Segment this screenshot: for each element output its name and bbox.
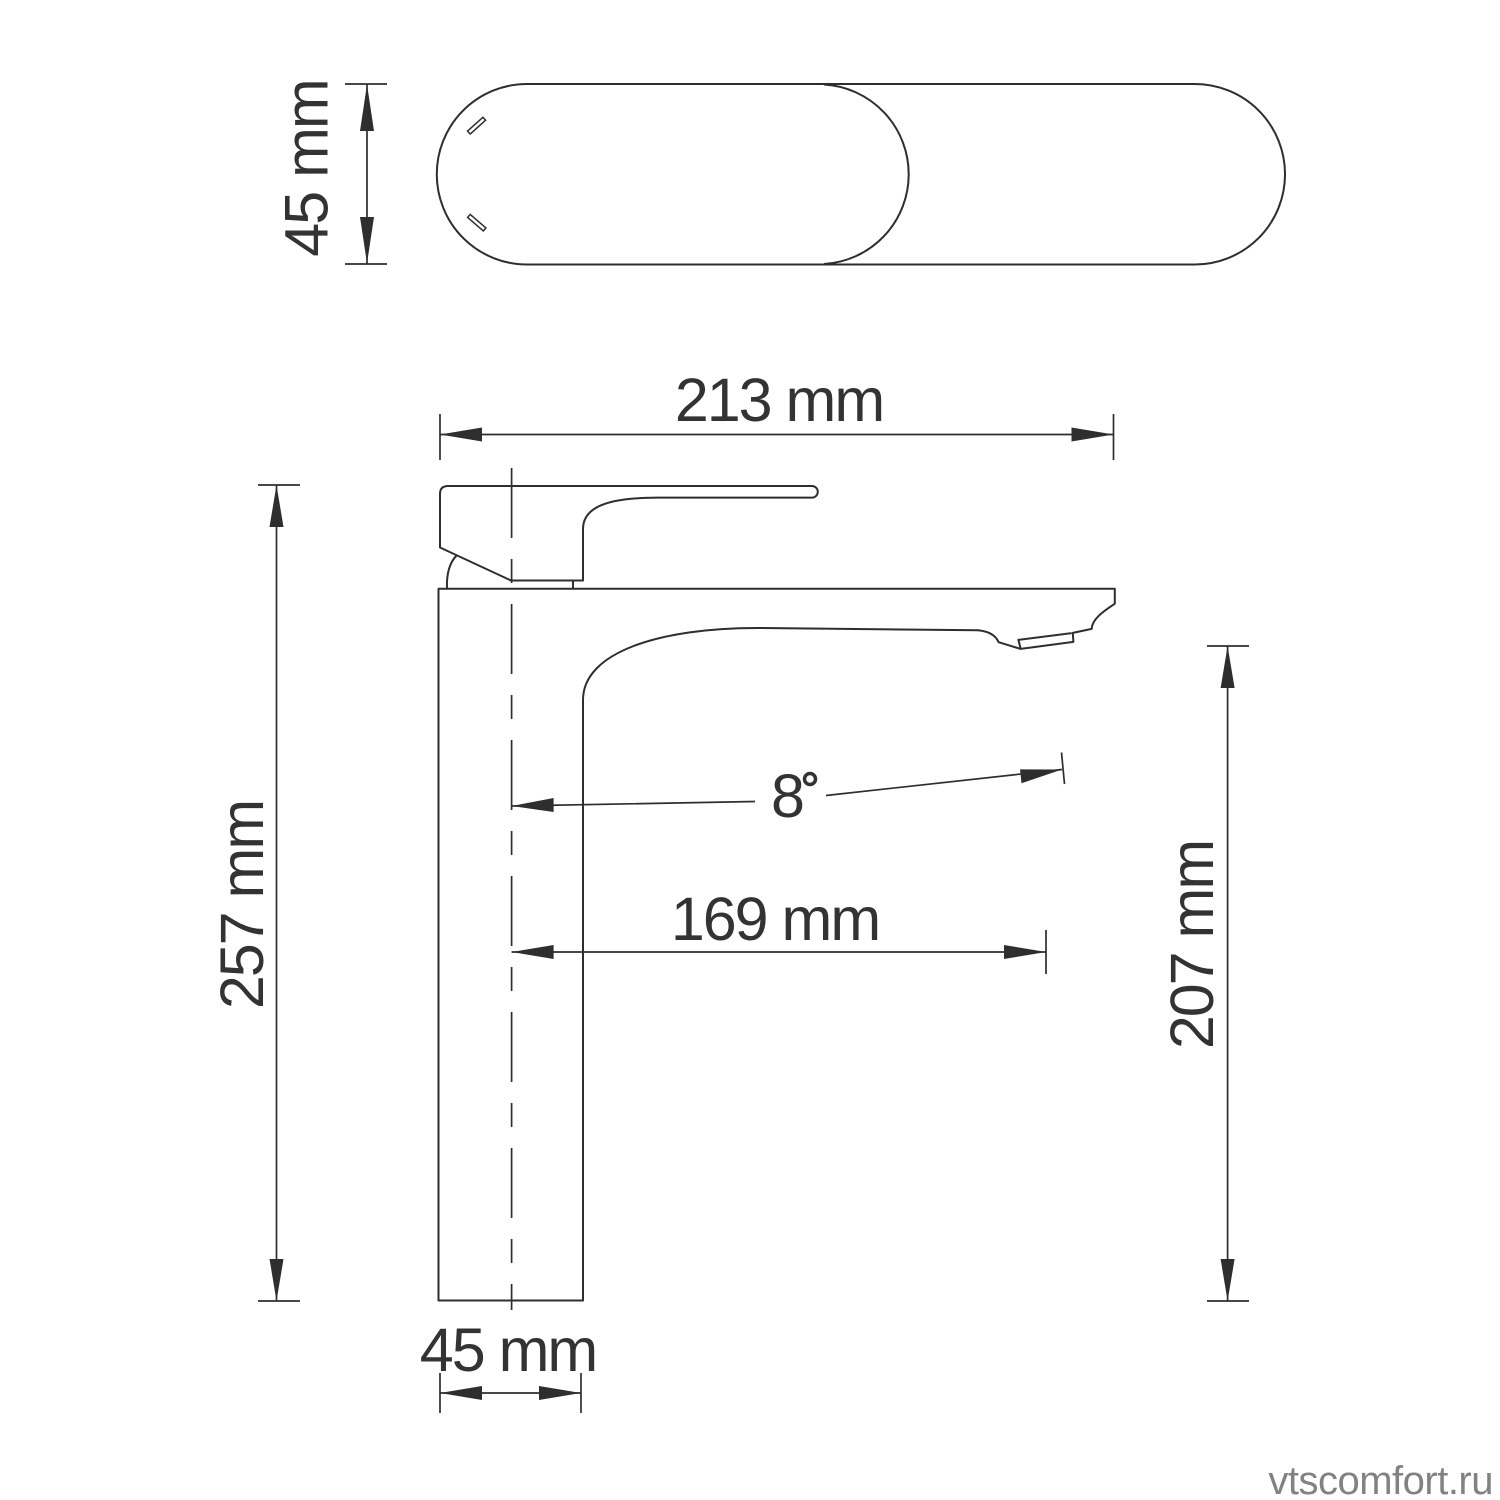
svg-text:8: 8 (771, 762, 803, 830)
svg-text:vtscomfort.ru: vtscomfort.ru (1268, 1459, 1493, 1500)
svg-text:45 mm: 45 mm (273, 80, 341, 256)
svg-text:257 mm: 257 mm (208, 801, 276, 1009)
svg-text:45 mm: 45 mm (420, 1316, 596, 1384)
svg-text:207 mm: 207 mm (1158, 841, 1226, 1049)
svg-text:169 mm: 169 mm (671, 885, 879, 953)
svg-text:213 mm: 213 mm (675, 366, 883, 434)
